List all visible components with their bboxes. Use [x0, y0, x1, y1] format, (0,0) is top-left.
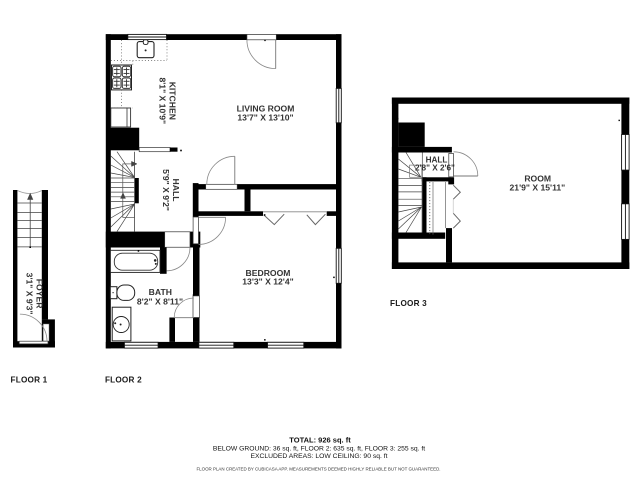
svg-text:3'1" X 9'3": 3'1" X 9'3"	[25, 273, 35, 315]
svg-text:5'9" X 9'2": 5'9" X 9'2"	[161, 169, 171, 211]
svg-text:KITCHEN: KITCHEN	[167, 82, 177, 120]
svg-text:FLOOR PLAN CREATED BY CUBICASA: FLOOR PLAN CREATED BY CUBICASA APP. MEAS…	[196, 466, 440, 471]
svg-text:HALL: HALL	[171, 179, 181, 202]
svg-text:8'1" X 10'9": 8'1" X 10'9"	[157, 77, 167, 124]
svg-text:FLOOR 2: FLOOR 2	[105, 376, 142, 385]
svg-text:13'7" X 13'10": 13'7" X 13'10"	[237, 112, 293, 122]
svg-text:FLOOR 1: FLOOR 1	[11, 376, 48, 385]
svg-text:2'8" X 2'6": 2'8" X 2'6"	[415, 163, 455, 172]
svg-text:FLOOR 3: FLOOR 3	[390, 299, 427, 308]
svg-text:BATH: BATH	[149, 287, 172, 297]
svg-text:FOYER: FOYER	[35, 279, 45, 309]
svg-text:8'2" X 8'11": 8'2" X 8'11"	[137, 297, 183, 307]
svg-text:EXCLUDED AREAS: LOW CEILING: 9: EXCLUDED AREAS: LOW CEILING: 90 sq. ft	[251, 453, 388, 460]
svg-text:21'9" X 15'11": 21'9" X 15'11"	[510, 182, 566, 192]
svg-text:13'3" X 12'4": 13'3" X 12'4"	[242, 277, 293, 287]
svg-text:TOTAL: 926 sq. ft: TOTAL: 926 sq. ft	[289, 435, 351, 444]
svg-text:BELOW GROUND: 36 sq. ft, FLOOR: BELOW GROUND: 36 sq. ft, FLOOR 2: 635 sq…	[213, 445, 425, 452]
